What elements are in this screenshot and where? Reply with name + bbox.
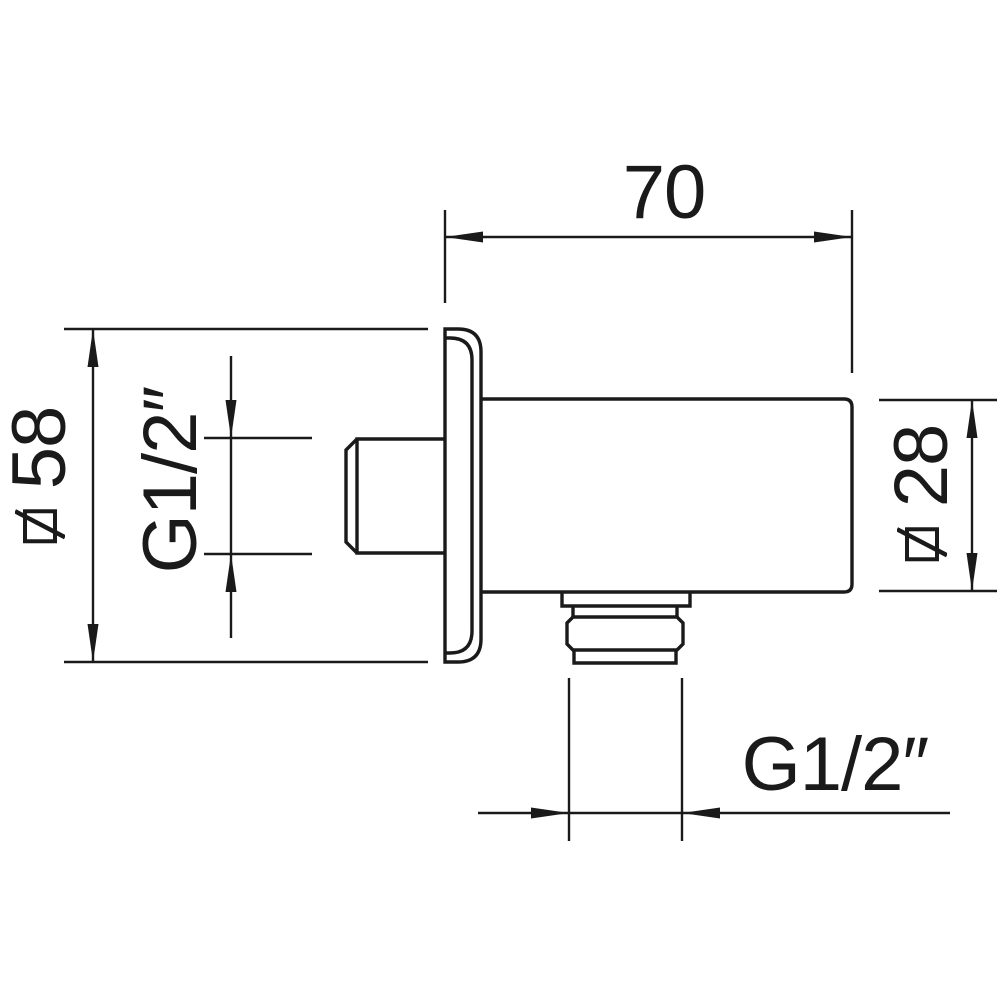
technical-drawing-canvas: 70 58 G1/2″ 28 G1/2″ [0,0,1000,1000]
dim-inlet-thread [204,356,312,638]
part-body [481,399,852,592]
square-diameter-icon [897,521,947,567]
inlet-thread-value: G1/2″ [133,387,209,574]
outlet-thread-value: G1/2″ [742,727,929,803]
plate-size-value: 58 [2,407,78,490]
label-top-width: 70 [623,155,706,231]
part-inlet-spigot [346,439,445,553]
body-depth-value: 28 [884,425,960,508]
label-body-depth: 28 [884,425,960,568]
top-width-value: 70 [623,155,706,231]
part-outlet-connector [562,592,690,663]
label-outlet-thread: G1/2″ [742,727,929,803]
label-inlet-thread: G1/2″ [133,387,209,574]
square-diameter-icon [15,503,65,549]
part-wall-plate-flange [445,329,481,662]
label-plate-size: 58 [2,407,78,550]
dim-plate-size [64,329,428,662]
